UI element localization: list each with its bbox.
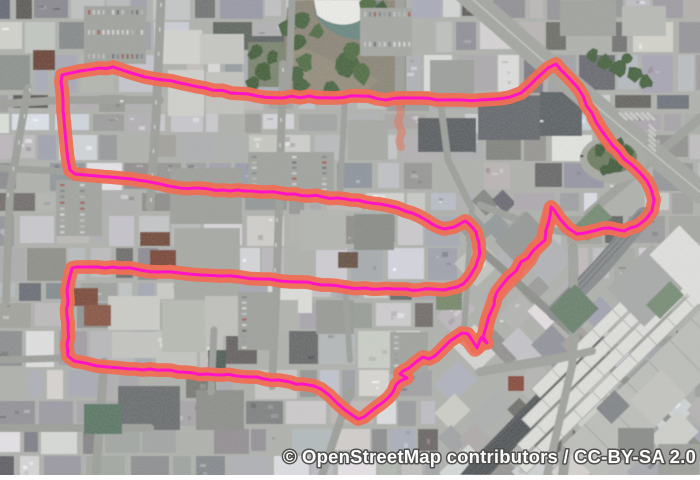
svg-text:© OpenStreetMap contributors /: © OpenStreetMap contributors / CC-BY-SA … <box>283 446 696 467</box>
